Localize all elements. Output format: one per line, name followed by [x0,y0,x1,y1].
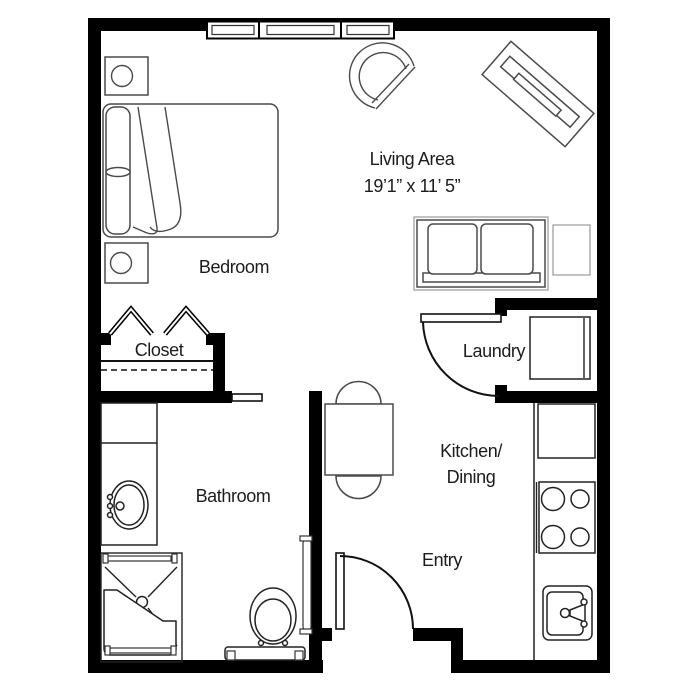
bedroom-furniture: Bedroom [103,57,278,283]
living-area-label: Living Area [370,149,456,169]
floor-plan-svg: Bedroom Closet [0,0,700,700]
toilet-icon [225,588,305,660]
living-area: Living Area 19’1” x 11’ 5” [350,41,594,290]
wall-entry-south-right [413,628,463,641]
entry: Entry [336,550,462,629]
window-pane [267,26,334,35]
wall-left [88,18,101,673]
closet-label: Closet [135,340,184,360]
bifold-door-icon [110,309,208,334]
wall-bottom-right [451,660,610,673]
shower-icon [101,553,182,662]
entry-door [336,553,413,629]
nightstand [105,57,148,95]
dining-chair [336,382,381,404]
living-area-dimensions: 19’1” x 11’ 5” [364,176,461,196]
nightstand [105,243,148,283]
kitchen-sink-icon [543,586,592,640]
bedroom-label: Bedroom [199,257,269,277]
laundry: Laundry [421,314,590,396]
loveseat [414,217,548,290]
wall-laundry-kitchen-stub [495,385,507,403]
kitchen-label-line2: Dining [447,467,496,487]
bathroom-label: Bathroom [196,486,271,506]
grab-bar-icon [300,536,312,634]
entry-label: Entry [422,550,462,570]
dining-table [325,404,393,475]
kitchen-dining: Kitchen/ Dining [325,382,595,660]
floor-plan: Bedroom Closet [0,0,700,700]
dining-chair [336,476,381,499]
armchair [350,43,415,109]
wall-right [597,18,610,673]
wall-closet-right [213,333,225,391]
pocket-door [232,394,262,401]
window-pane [212,26,254,35]
kitchen-label-line1: Kitchen/ [440,441,502,461]
window [207,22,394,39]
wall-laundry-kitchen [495,391,597,403]
wall-closet-left-stub [101,333,111,345]
closet: Closet [101,309,213,370]
range-icon [537,482,596,553]
laundry-label: Laundry [463,341,526,361]
wall-entry-jog [451,640,463,673]
bathroom: Bathroom [101,394,312,662]
bed [103,104,278,237]
wall-living-laundry [495,298,597,310]
tv-console [482,41,594,146]
refrigerator-icon [538,404,595,458]
wall-bathroom-top [88,391,232,403]
vanity-sink-icon [101,403,157,545]
end-table [553,225,590,275]
dining-set [325,382,393,499]
washer-icon [530,317,590,379]
window-pane [347,26,389,35]
